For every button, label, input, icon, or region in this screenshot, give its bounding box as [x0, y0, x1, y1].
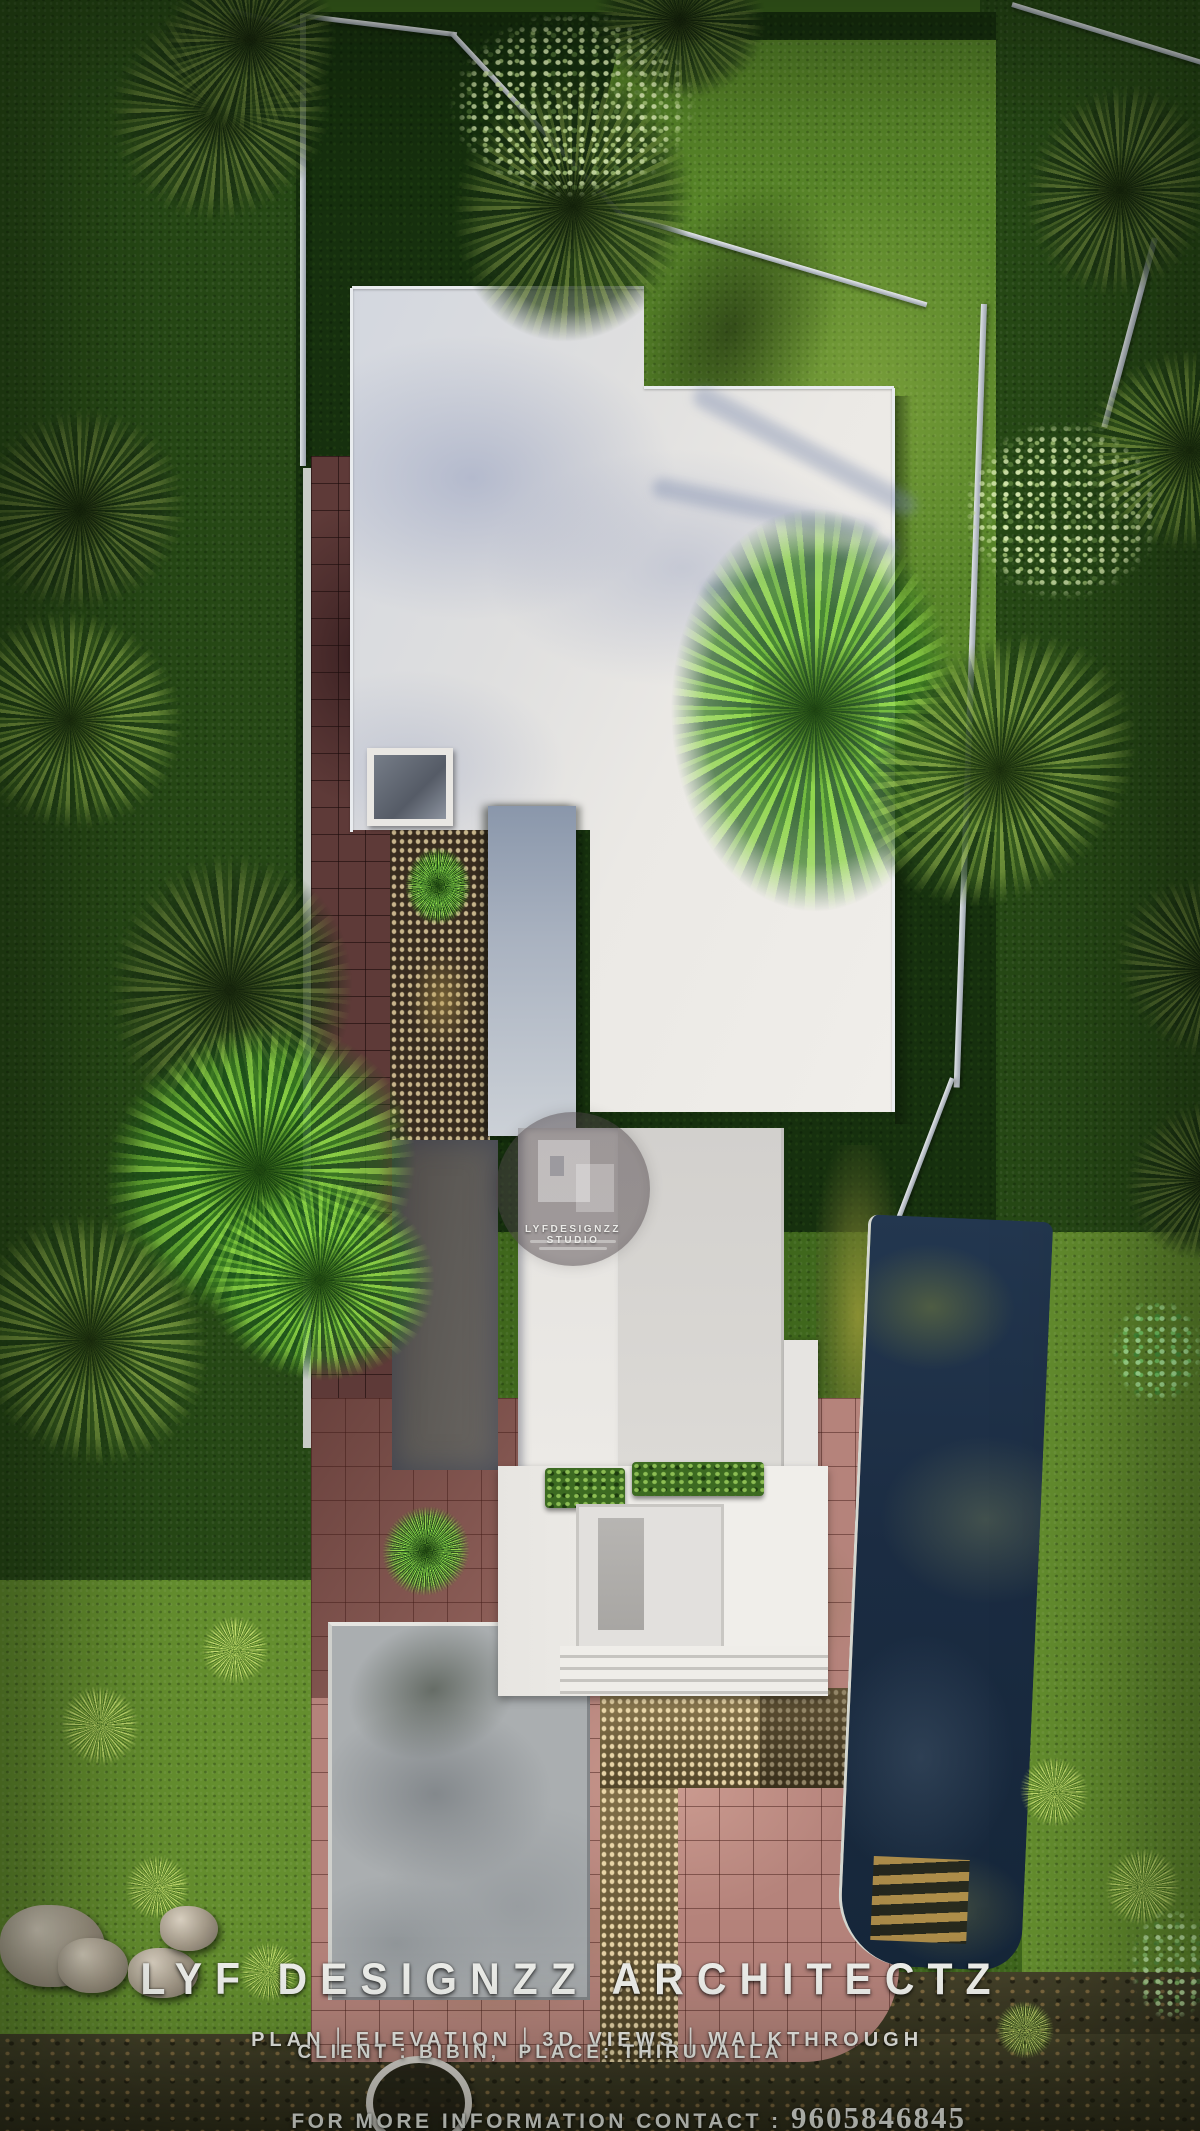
- roof-parapet-edge: [350, 288, 353, 832]
- watermark-house-glyph: [550, 1156, 564, 1176]
- contact-line: FOR MORE INFORMATION CONTACT : 960584684…: [10, 2076, 1200, 2131]
- watermark-tagline-bar: [539, 1247, 607, 1250]
- entrance-hedge: [632, 1462, 764, 1496]
- aerial-site-render: LYFDESIGNZZ STUDIO LYF DESIGNZZ ARCHITEC…: [0, 0, 1200, 2131]
- pool-steps: [870, 1856, 970, 1944]
- watermark-tagline-bar: [530, 1240, 616, 1243]
- entrance-hedge: [545, 1468, 625, 1508]
- rock: [160, 1906, 218, 1951]
- render-title: LYF DESIGNZZ ARCHITECTZ: [0, 1954, 1172, 2005]
- pergola-canopy-slab: [488, 806, 576, 1136]
- skylight: [367, 748, 453, 826]
- fan-palm: [392, 832, 484, 940]
- contact-prefix: FOR MORE INFORMATION CONTACT :: [291, 2110, 791, 2131]
- entry-court-slot: [598, 1518, 644, 1630]
- contact-number: 9605846845: [791, 2100, 966, 2131]
- flowering-tree: [928, 390, 1198, 630]
- entrance-steps: [560, 1646, 828, 1694]
- watermark-house-glyph: [576, 1164, 614, 1212]
- client-place-line: CLIENT : BIBIN, PLACE: THIRUVALLA: [0, 2042, 1140, 2064]
- roof-parapet-edge: [644, 386, 894, 389]
- studio-watermark-badge: LYFDESIGNZZ STUDIO: [496, 1112, 650, 1266]
- grass-tuft: [185, 1600, 285, 1700]
- services-line: PLAN|ELEVATION|3D VIEWS|WALKTHROUGH: [0, 2006, 1166, 2075]
